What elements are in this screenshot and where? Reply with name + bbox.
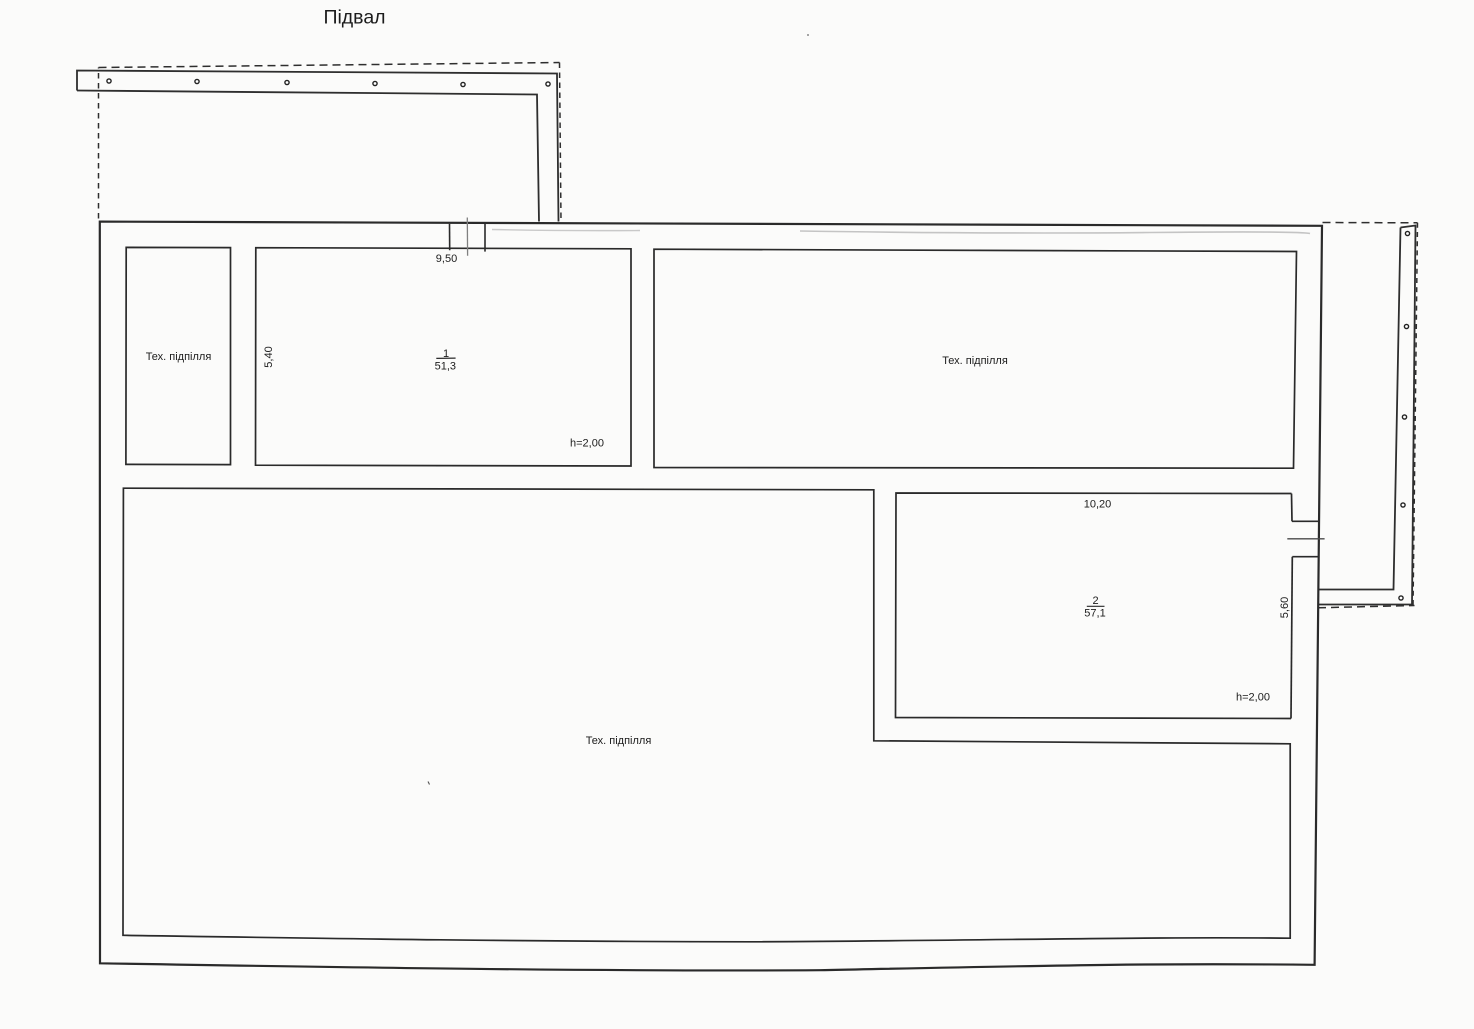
svg-text:2: 2 [1092, 595, 1098, 607]
svg-text:9,50: 9,50 [436, 253, 457, 265]
svg-text:10,20: 10,20 [1084, 498, 1112, 510]
svg-text:h=2,00: h=2,00 [1236, 692, 1270, 704]
svg-text:Тех. підпілля: Тех. підпілля [586, 735, 652, 747]
svg-text:51,3: 51,3 [435, 360, 456, 372]
svg-text:Тех. підпілля: Тех. підпілля [146, 351, 212, 363]
svg-text:h=2,00: h=2,00 [570, 438, 604, 450]
svg-text:5,60: 5,60 [1279, 597, 1291, 618]
svg-text:Тех. підпілля: Тех. підпілля [942, 355, 1008, 367]
svg-text:Підвал: Підвал [323, 7, 385, 29]
svg-text:5,40: 5,40 [263, 346, 275, 367]
svg-text:57,1: 57,1 [1084, 608, 1105, 620]
